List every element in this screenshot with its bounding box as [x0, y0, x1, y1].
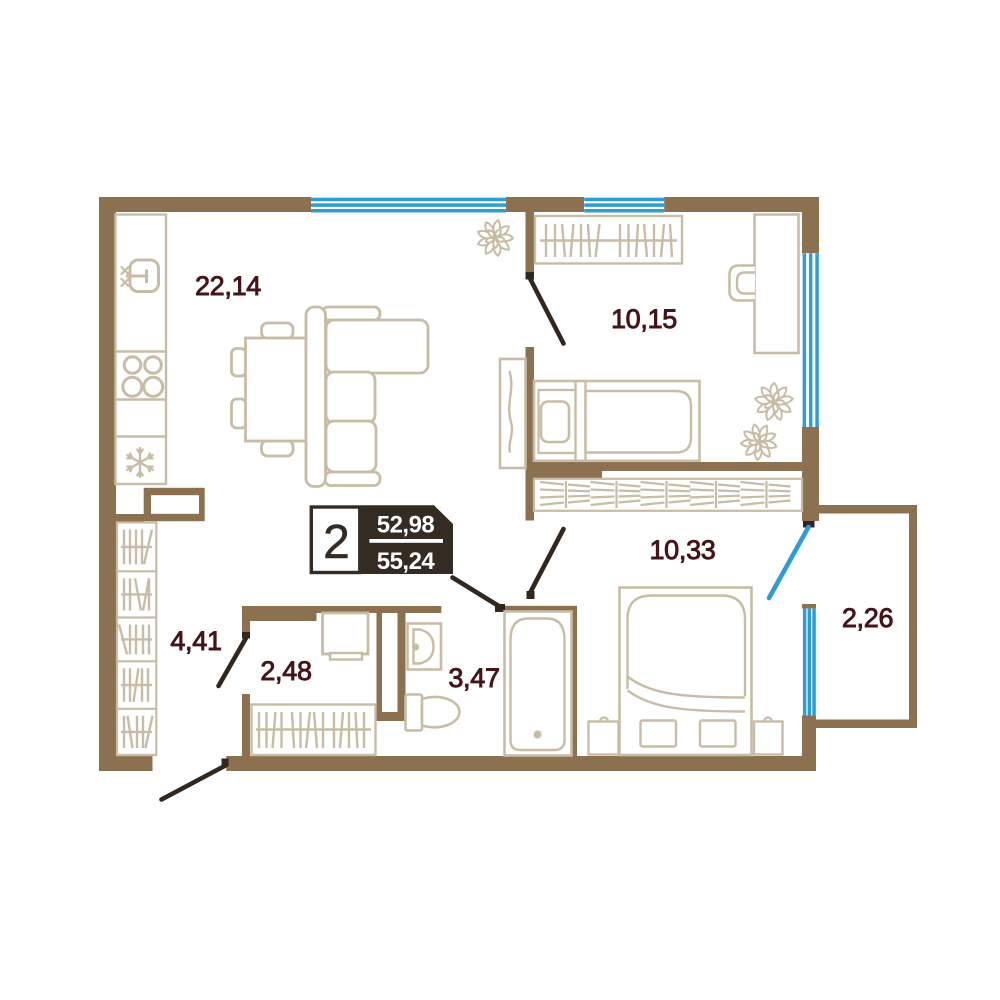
svg-text:2: 2	[323, 516, 350, 569]
svg-text:10,15: 10,15	[611, 304, 677, 334]
svg-text:2,48: 2,48	[260, 656, 311, 686]
svg-text:4,41: 4,41	[170, 626, 221, 656]
svg-text:52,98: 52,98	[377, 511, 435, 538]
svg-text:22,14: 22,14	[195, 271, 261, 301]
svg-text:55,24: 55,24	[377, 548, 436, 575]
svg-text:10,33: 10,33	[649, 535, 715, 565]
svg-text:3,47: 3,47	[448, 663, 499, 693]
svg-text:2,26: 2,26	[842, 603, 893, 633]
